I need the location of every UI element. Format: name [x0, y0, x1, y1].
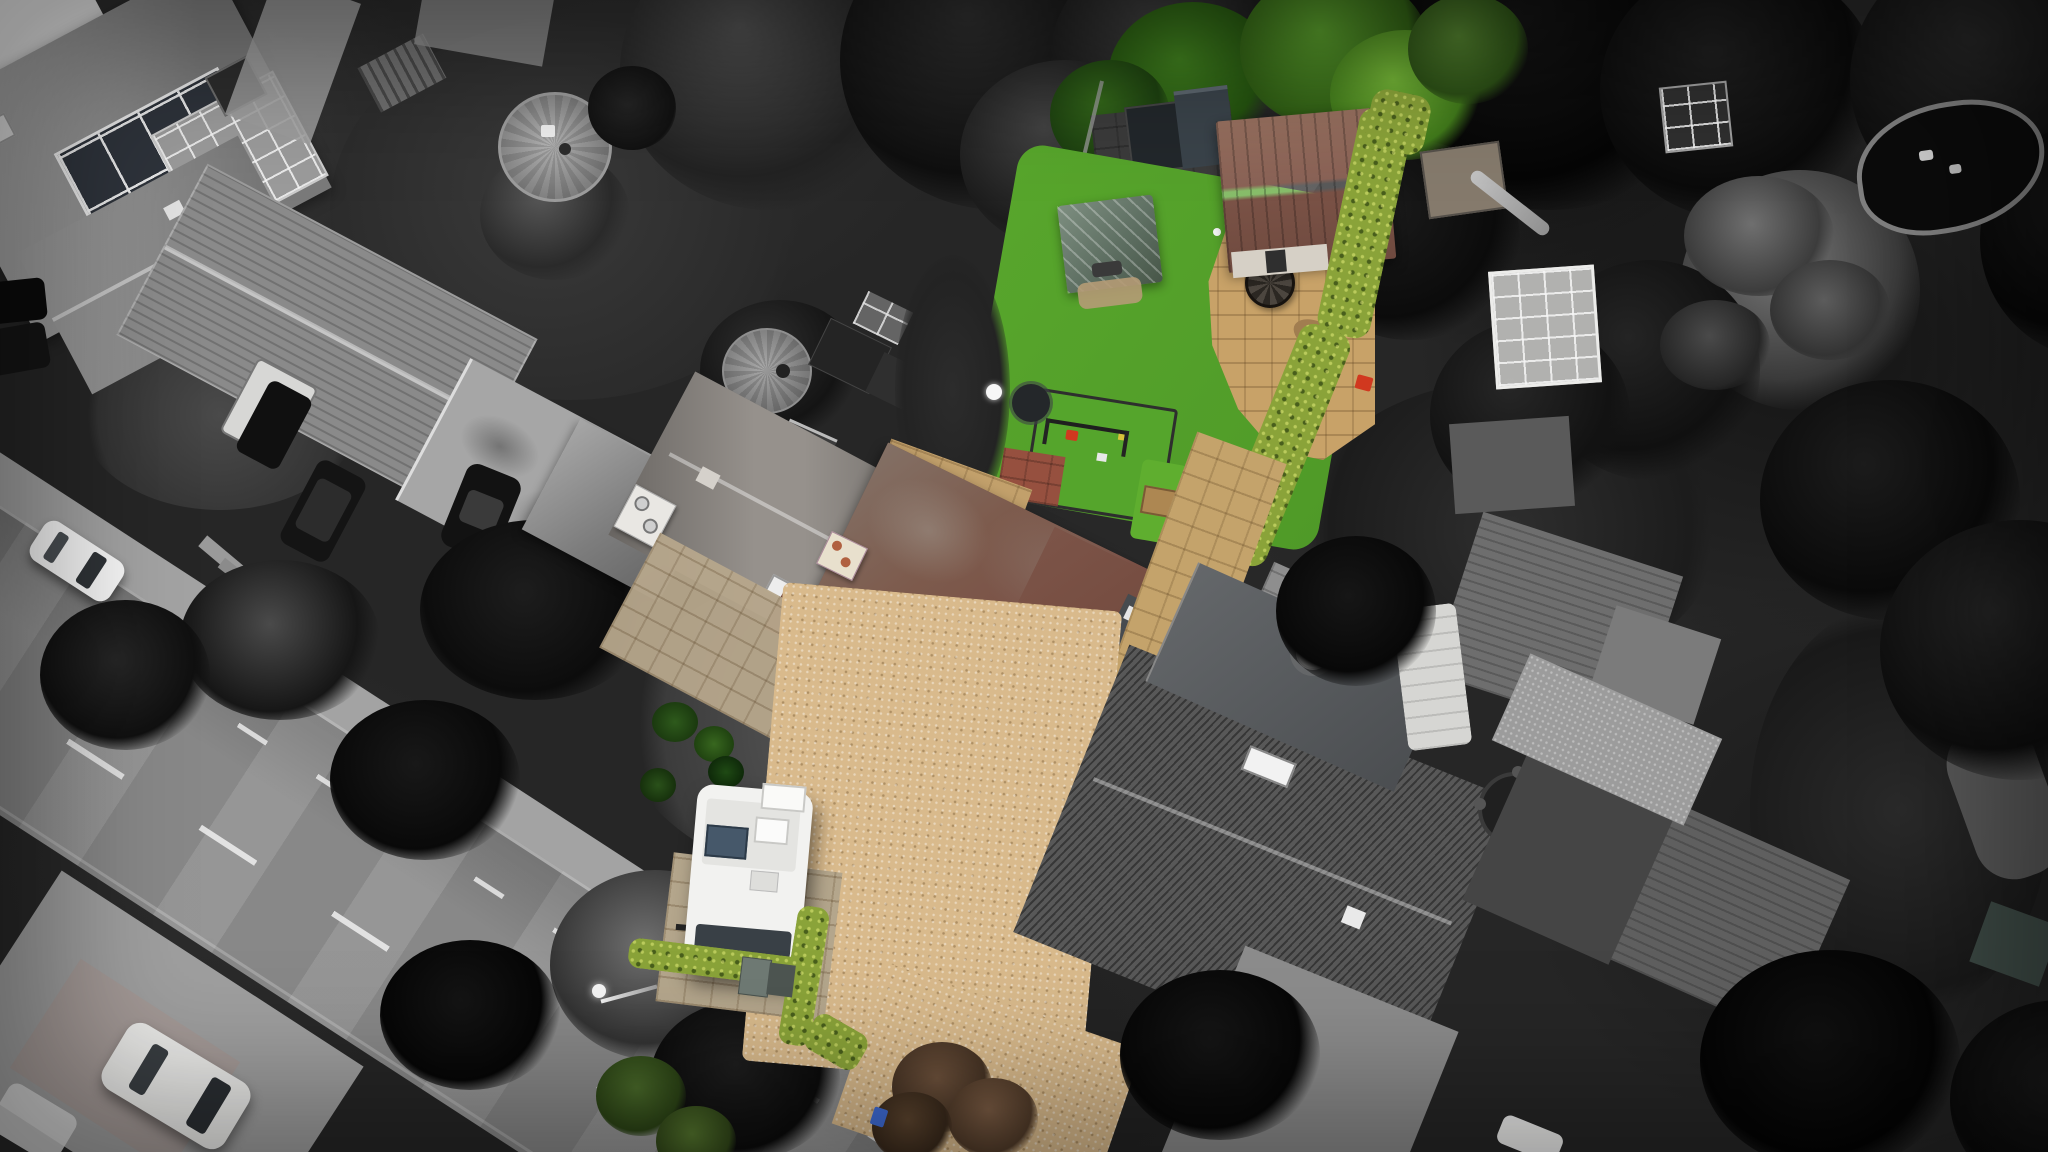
roof-vent	[1341, 905, 1366, 929]
rockery	[1660, 300, 1770, 390]
yellow-toy	[1118, 434, 1125, 441]
swing-leg	[1042, 418, 1050, 444]
ridge-line	[1092, 777, 1452, 925]
chimney-pot	[839, 556, 852, 569]
street-lamp-head	[592, 984, 606, 998]
palm-plant	[708, 756, 744, 788]
wing-mirror	[676, 924, 686, 931]
cold-frame	[1659, 81, 1734, 154]
red-toy	[1065, 429, 1078, 441]
white-toy	[1096, 453, 1107, 462]
shrub-green	[652, 702, 698, 742]
dark-car	[0, 277, 48, 325]
skylight	[0, 112, 16, 151]
bare-tree	[948, 1078, 1038, 1152]
motorhome-skylight	[754, 816, 790, 845]
roadside-hedge	[330, 700, 520, 860]
aerial-photo	[0, 0, 2048, 1152]
motorhome-ac-unit	[761, 783, 807, 813]
conservatory	[1488, 264, 1602, 389]
storage-bin	[766, 963, 796, 998]
round-garden-bed	[588, 66, 676, 150]
stepping-stone	[1949, 164, 1962, 175]
motorhome-skylight	[749, 870, 779, 892]
rear-window	[127, 1043, 169, 1097]
windshield	[75, 551, 108, 590]
play-structure-platform	[1420, 141, 1509, 219]
gazebo-ribs	[1057, 194, 1163, 293]
roadside-hedge	[380, 940, 560, 1090]
garden-furniture	[559, 143, 571, 155]
globe-lamp	[986, 384, 1002, 400]
gazebo	[1057, 194, 1163, 293]
flowering-bush	[180, 560, 380, 720]
windshield	[185, 1076, 233, 1135]
chimney-pot	[830, 539, 843, 552]
rockery	[1770, 260, 1890, 360]
brick-wall-area	[1449, 416, 1575, 514]
garden-furniture	[541, 125, 555, 137]
shrub-green	[640, 768, 676, 802]
patio-lamp	[1213, 228, 1221, 236]
planter-pot	[776, 364, 790, 378]
bush-dark	[1276, 536, 1436, 686]
motorhome-solar-panel	[704, 824, 749, 860]
swing-frame	[1046, 418, 1130, 435]
skylight	[1241, 745, 1297, 788]
cabin-door	[1265, 250, 1287, 274]
chimney-pot	[640, 516, 660, 536]
parasol-table	[1012, 384, 1050, 422]
stepping-stone	[1919, 149, 1934, 161]
rear-window	[42, 531, 69, 564]
chair-dot	[1474, 798, 1486, 810]
chimney-pot	[632, 493, 652, 513]
roadside-hedge	[40, 600, 210, 750]
bush-dark	[1120, 970, 1320, 1140]
